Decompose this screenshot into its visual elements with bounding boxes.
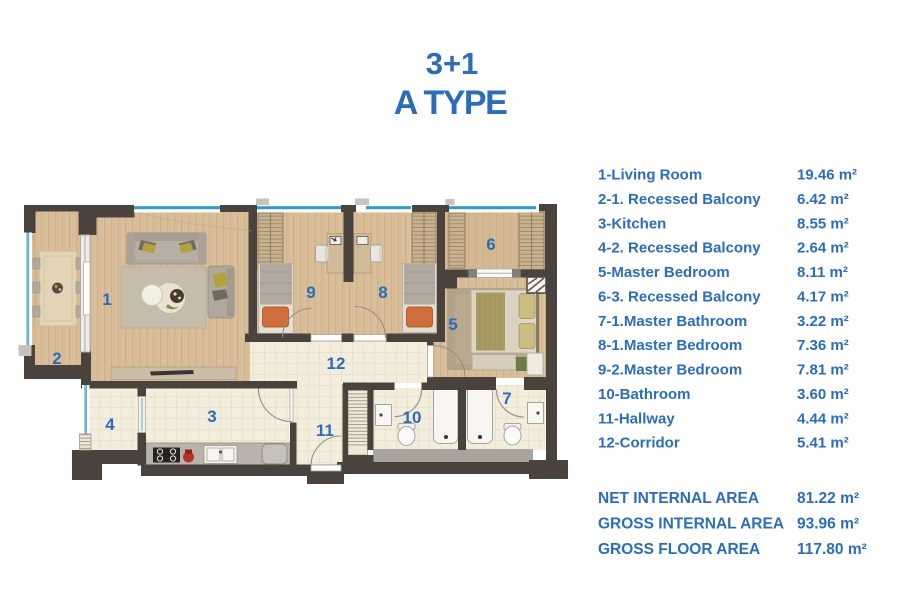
svg-text:4.17 m²: 4.17 m² <box>797 288 849 305</box>
svg-text:3-Kitchen: 3-Kitchen <box>598 215 666 232</box>
svg-text:1-Living Room: 1-Living Room <box>598 167 702 184</box>
svg-text:1: 1 <box>102 290 111 309</box>
svg-text:7-1.Master Bathroom: 7-1.Master Bathroom <box>598 313 747 330</box>
svg-text:11: 11 <box>316 421 334 440</box>
svg-text:8.11 m²: 8.11 m² <box>797 264 848 281</box>
svg-text:2: 2 <box>52 349 61 368</box>
svg-text:3+1: 3+1 <box>426 46 479 81</box>
svg-text:NET INTERNAL AREA: NET INTERNAL AREA <box>598 490 759 507</box>
svg-text:93.96 m²: 93.96 m² <box>797 516 859 533</box>
svg-text:2-1. Recessed Balcony: 2-1. Recessed Balcony <box>598 191 761 208</box>
svg-text:GROSS INTERNAL AREA: GROSS INTERNAL AREA <box>598 516 784 533</box>
svg-text:5-Master Bedroom: 5-Master Bedroom <box>598 264 730 281</box>
svg-text:4.44 m²: 4.44 m² <box>797 410 849 427</box>
svg-text:19.46 m²: 19.46 m² <box>797 167 857 184</box>
svg-text:5.41 m²: 5.41 m² <box>797 435 849 452</box>
svg-text:4: 4 <box>105 415 115 434</box>
svg-text:6: 6 <box>486 235 495 254</box>
svg-text:10: 10 <box>403 408 422 427</box>
svg-text:3: 3 <box>207 407 216 426</box>
svg-text:7: 7 <box>502 389 511 408</box>
svg-text:3.60 m²: 3.60 m² <box>797 386 849 403</box>
svg-text:9: 9 <box>306 283 315 302</box>
svg-text:2.64 m²: 2.64 m² <box>797 240 849 257</box>
svg-text:8.55 m²: 8.55 m² <box>797 215 849 232</box>
svg-text:A TYPE: A TYPE <box>394 84 507 122</box>
svg-text:8: 8 <box>378 283 387 302</box>
svg-text:5: 5 <box>448 315 457 334</box>
svg-text:81.22 m²: 81.22 m² <box>797 490 859 507</box>
svg-text:GROSS FLOOR AREA: GROSS FLOOR AREA <box>598 541 760 558</box>
svg-text:10-Bathroom: 10-Bathroom <box>598 386 691 403</box>
svg-text:6.42 m²: 6.42 m² <box>797 191 849 208</box>
svg-text:12: 12 <box>327 354 346 373</box>
svg-text:7.36 m²: 7.36 m² <box>797 337 849 354</box>
svg-text:11-Hallway: 11-Hallway <box>598 410 675 427</box>
svg-text:117.80 m²: 117.80 m² <box>797 541 867 558</box>
svg-text:3.22 m²: 3.22 m² <box>797 313 849 330</box>
svg-text:12-Corridor: 12-Corridor <box>598 435 680 452</box>
svg-text:7.81 m²: 7.81 m² <box>797 362 849 379</box>
svg-text:9-2.Master Bedroom: 9-2.Master Bedroom <box>598 362 742 379</box>
svg-text:4-2. Recessed Balcony: 4-2. Recessed Balcony <box>598 240 761 257</box>
svg-text:6-3. Recessed Balcony: 6-3. Recessed Balcony <box>598 288 761 305</box>
svg-text:8-1.Master Bedroom: 8-1.Master Bedroom <box>598 337 742 354</box>
